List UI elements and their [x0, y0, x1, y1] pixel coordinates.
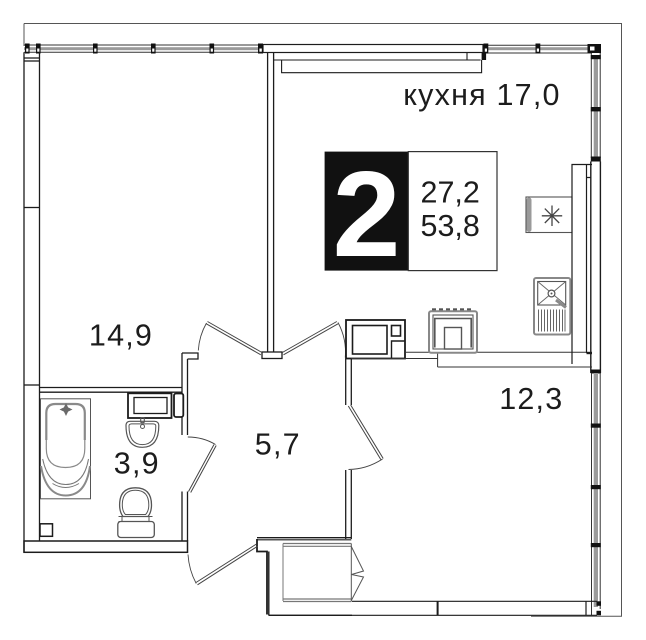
svg-text:5,7: 5,7 — [255, 428, 301, 462]
svg-text:2: 2 — [333, 146, 401, 282]
svg-text:3,9: 3,9 — [114, 447, 160, 481]
svg-text:кухня 17,0: кухня 17,0 — [403, 78, 560, 112]
svg-text:12,3: 12,3 — [499, 382, 563, 416]
svg-text:27,2: 27,2 — [421, 176, 480, 210]
svg-text:14,9: 14,9 — [89, 319, 153, 353]
svg-text:53,8: 53,8 — [421, 209, 480, 243]
